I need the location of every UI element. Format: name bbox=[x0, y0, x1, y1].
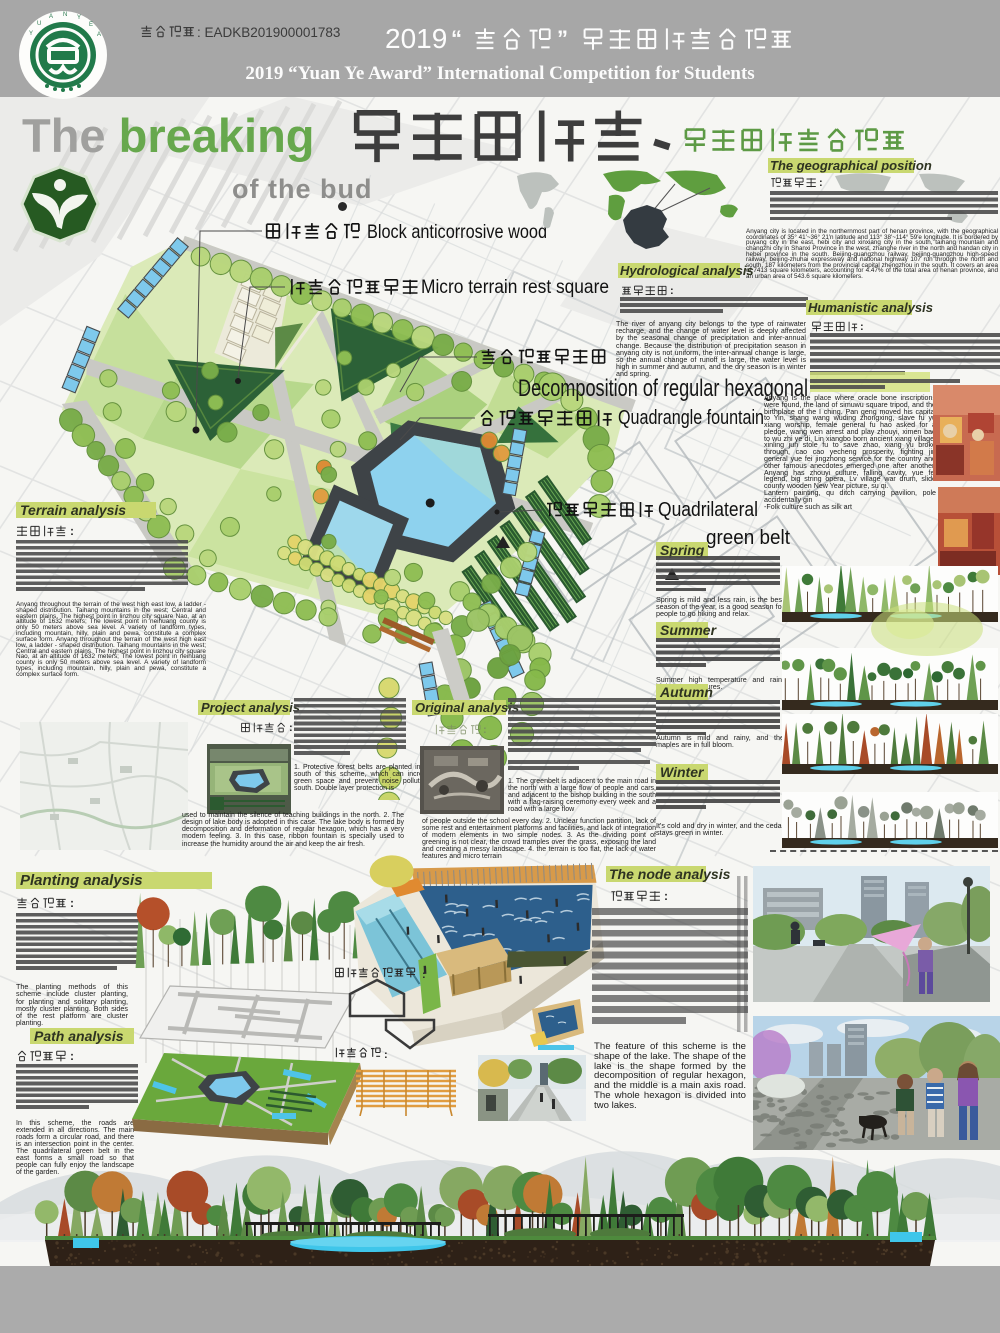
svg-text:Y: Y bbox=[77, 15, 81, 21]
svg-text::: : bbox=[70, 524, 74, 538]
svg-text:”: ” bbox=[557, 26, 568, 51]
svg-text::: : bbox=[670, 285, 674, 297]
svg-text:N: N bbox=[63, 12, 67, 18]
svg-text::: : bbox=[384, 1049, 388, 1061]
svg-text:: EADKB201900001783: : EADKB201900001783 bbox=[197, 25, 340, 40]
svg-text:U: U bbox=[37, 21, 41, 27]
svg-text:A: A bbox=[49, 14, 53, 20]
svg-text:2019: 2019 bbox=[385, 23, 447, 54]
svg-text::: : bbox=[70, 896, 74, 910]
svg-text:Y: Y bbox=[29, 31, 33, 37]
svg-text::: : bbox=[483, 724, 487, 736]
svg-text::: : bbox=[664, 889, 668, 903]
svg-text:“: “ bbox=[451, 26, 462, 51]
svg-text::: : bbox=[289, 722, 293, 734]
svg-text:E: E bbox=[89, 22, 93, 28]
svg-text::: : bbox=[422, 969, 426, 981]
svg-text:A: A bbox=[97, 32, 101, 38]
svg-text::: : bbox=[860, 321, 864, 333]
svg-text::: : bbox=[70, 1049, 74, 1063]
svg-text:green belt: green belt bbox=[706, 527, 790, 549]
svg-text::: : bbox=[819, 177, 823, 189]
svg-text:Quadrangle fountain: Quadrangle fountain bbox=[618, 407, 764, 429]
svg-text:Quadrilateral: Quadrilateral bbox=[658, 499, 758, 521]
svg-text:Micro terrain rest square: Micro terrain rest square bbox=[421, 277, 609, 298]
